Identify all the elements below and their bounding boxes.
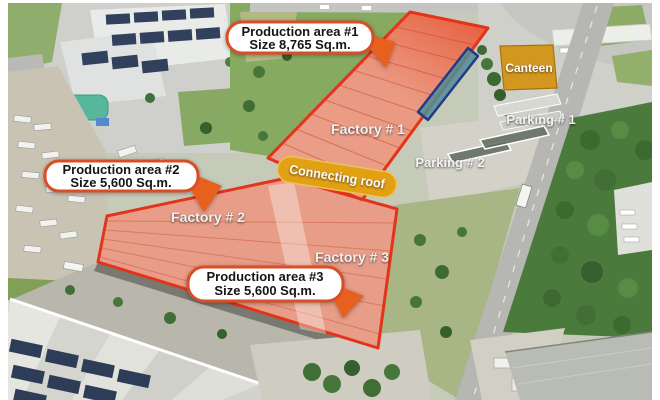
callout3-size: Size 5,600 Sq.m. xyxy=(214,283,315,298)
parking2-label: Parking # 2 xyxy=(415,155,484,170)
callout3-title: Production area #3 xyxy=(206,269,323,284)
annotated-aerial-photo: Canteen Connecting roof Factory # 1 Fact… xyxy=(0,0,660,400)
canteen-highlight: Canteen xyxy=(500,45,557,90)
factory3-label: Factory # 3 xyxy=(315,249,389,265)
factory2-label: Factory # 2 xyxy=(171,209,245,225)
factory1-label: Factory # 1 xyxy=(331,121,405,137)
parking1-label: Parking # 1 xyxy=(506,112,575,127)
callout1-size: Size 8,765 Sq.m. xyxy=(249,37,350,52)
callout2-size: Size 5,600 Sq.m. xyxy=(70,175,171,190)
aerial-photo-canvas: Canteen Connecting roof Factory # 1 Fact… xyxy=(0,0,660,400)
canteen-label: Canteen xyxy=(505,61,552,75)
